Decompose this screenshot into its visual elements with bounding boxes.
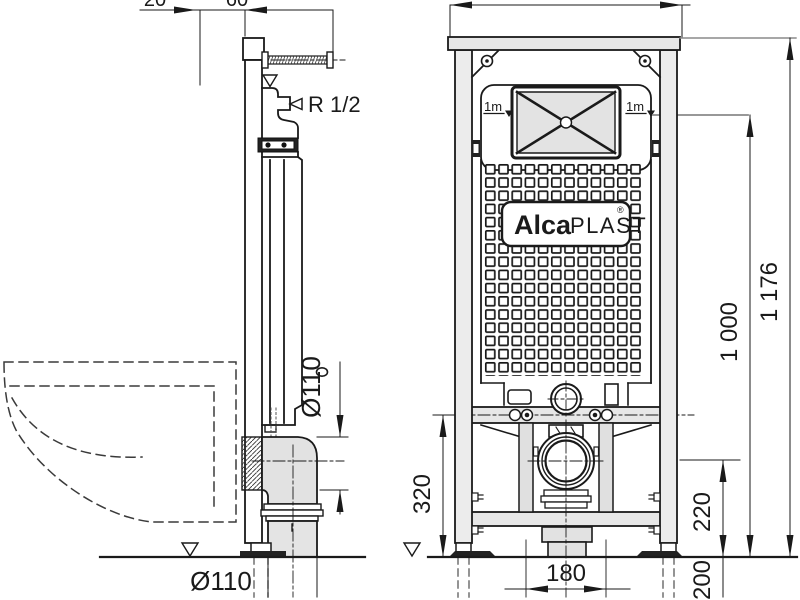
side-view-figure: 20 60 R 1/2 Ø110 Ø110 [4, 0, 365, 597]
dimension-top-width [450, 2, 690, 38]
dimension-1176 [787, 38, 794, 557]
inlet-pointer-icon [290, 99, 302, 110]
dimension-top-partial-b: 60 [226, 0, 248, 11]
drain-elbow-side [252, 437, 344, 597]
meter-mark-right-label: 1m [626, 99, 644, 114]
wall-anchor-rod [248, 52, 345, 68]
pipe-dia-side-label: Ø110 [296, 356, 326, 418]
waste-sleeve-section [242, 437, 262, 490]
dimension-1176-label: 1 176 [756, 262, 783, 322]
dimension-top-partial-a: 20 [144, 0, 166, 11]
frame-post-side [243, 38, 264, 60]
frame-top-rail [448, 37, 680, 50]
dimension-dia110-bottom [268, 557, 317, 597]
level-mark-icon [263, 75, 277, 87]
floor-level-icon-right [404, 543, 420, 556]
meter-mark-left-label: 1m [484, 99, 502, 114]
frame-post-left [455, 50, 472, 543]
toilet-bowl-hidden-outline [4, 362, 236, 522]
technical-drawing-page: 20 60 R 1/2 Ø110 Ø110 [0, 0, 800, 600]
dimension-1000 [747, 115, 754, 557]
logo-plast-text: PLAST [570, 213, 647, 238]
dimension-320 [433, 415, 455, 557]
corner-gussets [472, 51, 660, 77]
frame-post-right [660, 50, 677, 543]
wc-frame-drawing: 20 60 R 1/2 Ø110 Ø110 [0, 0, 800, 600]
pipe-dia-bottom-label: Ø110 [190, 566, 252, 596]
alcaplast-logo: Alca PLAST ® [502, 202, 647, 246]
dimension-320-label: 320 [409, 474, 436, 514]
grid-panel [484, 163, 642, 376]
front-view-figure: Alca PLAST ® 1m 1m [404, 2, 797, 600]
dimension-180-label: 180 [546, 560, 586, 587]
dimension-1000-label: 1 000 [716, 302, 743, 362]
logo-alca-text: Alca [514, 210, 572, 240]
dimension-220-label: 220 [689, 492, 716, 532]
logo-registered-mark: ® [617, 205, 624, 215]
dimension-top-left [140, 7, 333, 86]
dimension-200-label: 200 [689, 560, 716, 600]
water-inlet-label: R 1/2 [308, 92, 361, 117]
flush-window [512, 87, 620, 158]
cistern-bracket [258, 138, 298, 152]
floor-level-icon [182, 543, 198, 556]
